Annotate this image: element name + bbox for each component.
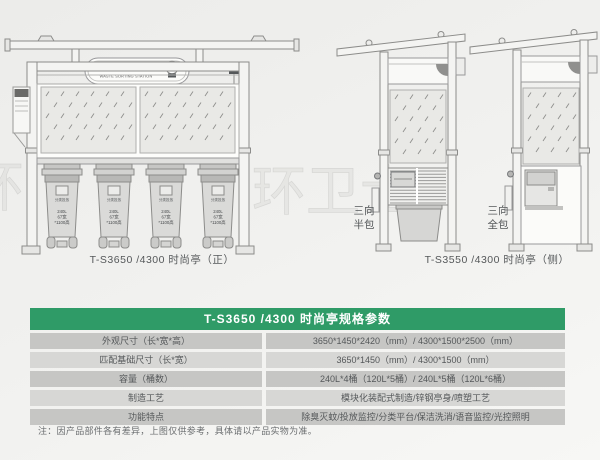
waste-bin: 分类投放 240L 67宽 *1100高: [94, 169, 134, 248]
table-row: 容量（桶数） 240L*4桶（120L*5桶）/ 240L*5桶（120L*6桶…: [30, 371, 565, 387]
spec-table-title: T-S3650 /4300 时尚亭规格参数: [30, 308, 565, 330]
waste-bin: 分类投放 240L 67宽 *1100高: [42, 169, 82, 248]
bin-capacity: 240L: [213, 209, 223, 214]
footnote: 注：因产品部件各有差异，上图仅供参考，具体请以产品实物为准。: [38, 424, 317, 437]
row-value: 除臭灭蚊/投放监控/分类平台/保洁洗消/语音监控/光控照明: [266, 409, 565, 425]
front-shelf-rail: [37, 158, 239, 169]
post-joint: [447, 150, 458, 155]
rear-post: [448, 42, 456, 244]
row-label: 功能特点: [30, 409, 262, 425]
waste-bin: 分类投放 240L 67宽 *1100高: [198, 169, 238, 248]
banner-edge: [588, 56, 597, 73]
watermark-partial: 环: [0, 158, 24, 218]
hatch-latch: [548, 187, 554, 191]
side-glass: [390, 90, 446, 163]
table-row: 功能特点 除臭灭蚊/投放监控/分类平台/保洁洗消/语音监控/光控照明: [30, 409, 565, 425]
row-value: 3650*1450（mm）/ 4300*1500（mm）: [266, 352, 565, 368]
full-wrap-label-2: 全包: [488, 218, 509, 231]
side-view-half-wrap: 三向 半包: [337, 32, 465, 252]
row-label: 外观尺寸（长*宽*高）: [30, 333, 262, 349]
side-bin: [397, 209, 441, 241]
hatch-shadow: [525, 206, 563, 210]
bin-height: *1100高: [106, 219, 122, 226]
bin-capacity: 240L: [161, 209, 171, 214]
foot: [376, 244, 391, 251]
post-joint: [579, 148, 590, 153]
table-row: 匹配基础尺寸（长*宽） 3650*1450（mm）/ 4300*1500（mm）: [30, 352, 565, 368]
post-joint: [512, 148, 523, 153]
bin-tag: 分类投放: [159, 197, 174, 202]
bin-capacity: 240L: [109, 209, 119, 214]
technical-drawing: 环 环卫士 共筑美好环境建设小区环保亭 WASTE SORTING STATIO…: [0, 0, 600, 300]
table-row: 外观尺寸（长*宽*高） 3650*1450*2420（mm）/ 4300*150…: [30, 333, 565, 349]
half-wrap-label-1: 三向: [354, 204, 375, 217]
bin-lid-side: [396, 205, 442, 209]
bin-height: *1100高: [158, 219, 174, 226]
front-post: [513, 50, 521, 244]
handle-knob: [508, 171, 514, 177]
bin-capacity: 240L: [57, 209, 67, 214]
bin-height: *1100高: [54, 219, 70, 226]
half-wrap-label-2: 半包: [354, 218, 375, 231]
foot: [577, 244, 592, 251]
foot: [445, 244, 460, 251]
hatch-flap: [527, 172, 555, 185]
front-glass-wall: [37, 84, 239, 158]
side-view-caption: T-S3550 /4300 时尚亭（侧）: [425, 253, 570, 266]
bin-tag: 分类投放: [107, 197, 122, 202]
bin-height: *1100高: [210, 219, 226, 226]
foot: [509, 244, 524, 251]
row-label: 制造工艺: [30, 390, 262, 406]
post-joint: [379, 150, 390, 155]
full-wrap-label-1: 三向: [488, 204, 509, 217]
row-value: 240L*4桶（120L*5桶）/ 240L*5桶（120L*6桶）: [266, 371, 565, 387]
product-spec-sheet: 环 环卫士 共筑美好环境建设小区环保亭 WASTE SORTING STATIO…: [0, 0, 600, 460]
pedestal: [22, 246, 40, 254]
side-glass: [523, 88, 579, 164]
row-value: 模块化装配式制造/锌钢亭身/喷塑工艺: [266, 390, 565, 406]
row-label: 容量（桶数）: [30, 371, 262, 387]
front-view: 共筑美好环境建设小区环保亭 WASTE SORTING STATION: [5, 36, 299, 266]
slanted-roof: [470, 32, 597, 54]
slanted-roof: [337, 34, 465, 56]
waste-bin: 分类投放 240L 67宽 *1100高: [146, 169, 186, 248]
table-row: 制造工艺 模块化装配式制造/锌钢亭身/喷塑工艺: [30, 390, 565, 406]
bin-tag: 分类投放: [211, 197, 226, 202]
row-value: 3650*1450*2420（mm）/ 4300*1500*2500（mm）: [266, 333, 565, 349]
bin-tag: 分类投放: [55, 197, 70, 202]
banner-edge: [456, 58, 465, 75]
row-label: 匹配基础尺寸（长*宽）: [30, 352, 262, 368]
spec-table: T-S3650 /4300 时尚亭规格参数 外观尺寸（长*宽*高） 3650*1…: [30, 308, 565, 425]
front-view-caption: T-S3650 /4300 时尚亭（正）: [90, 253, 235, 266]
handle-knob: [375, 173, 381, 179]
pedestal: [236, 246, 254, 254]
front-post: [380, 52, 388, 244]
